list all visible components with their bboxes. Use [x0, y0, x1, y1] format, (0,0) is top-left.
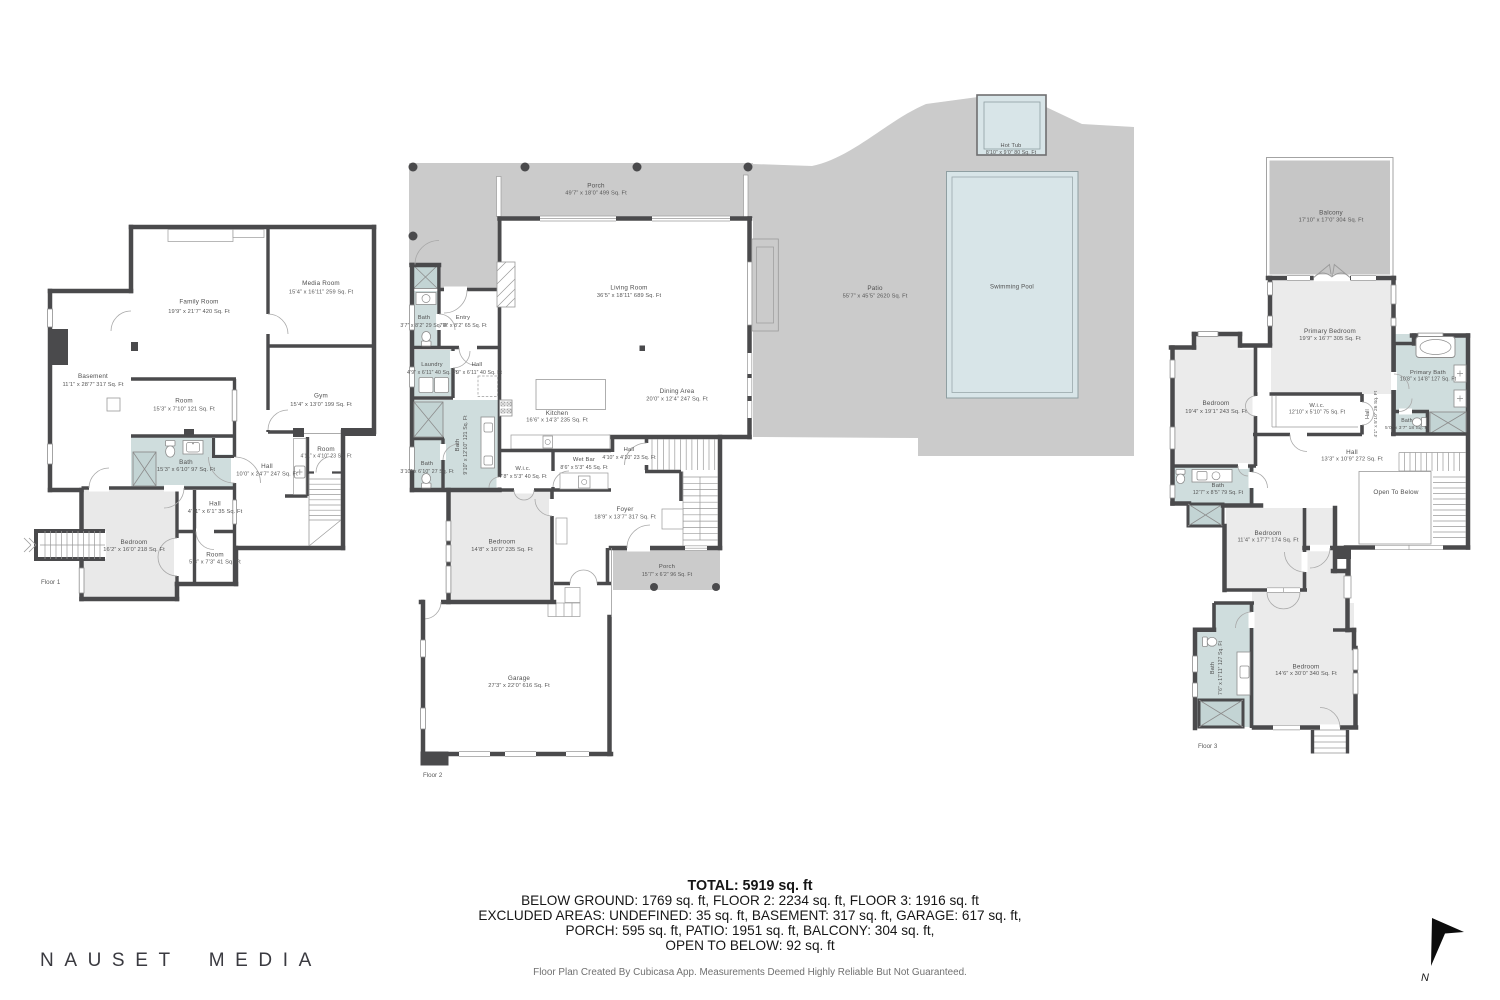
svg-text:Bedroom: Bedroom [121, 539, 148, 546]
svg-text:8’6” x 5’3” 45 Sq. Ft: 8’6” x 5’3” 45 Sq. Ft [560, 465, 608, 471]
svg-text:8’10” x 9’0” 80 Sq. Ft: 8’10” x 9’0” 80 Sq. Ft [986, 150, 1037, 156]
svg-text:15’3” x 7’10” 121 Sq. Ft: 15’3” x 7’10” 121 Sq. Ft [153, 407, 215, 413]
svg-text:Floor 1: Floor 1 [41, 579, 61, 586]
svg-text:Bedroom: Bedroom [1255, 530, 1282, 537]
svg-text:7’8” x 5’3” 40 Sq. Ft: 7’8” x 5’3” 40 Sq. Ft [499, 474, 547, 480]
svg-text:NAUSET MEDIA: NAUSET MEDIA [40, 950, 322, 971]
svg-text:20’0” x 12’4” 247 Sq. Ft: 20’0” x 12’4” 247 Sq. Ft [646, 397, 708, 403]
svg-text:4’10” x 4’10” 23 Sq. Ft: 4’10” x 4’10” 23 Sq. Ft [602, 455, 656, 461]
svg-text:Bedroom: Bedroom [489, 539, 516, 546]
svg-text:EXCLUDED AREAS: UNDEFINED: 35: EXCLUDED AREAS: UNDEFINED: 35 sq. ft, BA… [478, 908, 1021, 923]
svg-text:Family Room: Family Room [179, 299, 218, 306]
svg-text:Porch: Porch [659, 564, 675, 570]
svg-text:11’4” x 17’7” 174 Sq. Ft: 11’4” x 17’7” 174 Sq. Ft [1237, 538, 1298, 544]
svg-text:27’3” x 22’0” 616 Sq. Ft: 27’3” x 22’0” 616 Sq. Ft [488, 683, 550, 689]
svg-text:7’6” x 17’11” 127 Sq. Ft: 7’6” x 17’11” 127 Sq. Ft [1218, 640, 1224, 695]
svg-text:Media Room: Media Room [302, 280, 340, 287]
svg-text:14’6” x 30’0” 340 Sq. Ft: 14’6” x 30’0” 340 Sq. Ft [1275, 671, 1337, 677]
svg-text:N: N [1421, 972, 1429, 984]
svg-text:Open To Below: Open To Below [1373, 489, 1418, 496]
svg-text:4’9” x 6’11” 40 Sq. Ft: 4’9” x 6’11” 40 Sq. Ft [407, 370, 457, 376]
svg-text:Bath: Bath [455, 439, 461, 452]
svg-text:Hall: Hall [209, 501, 221, 508]
svg-text:Living Room: Living Room [610, 285, 647, 292]
svg-text:Hall: Hall [1346, 449, 1358, 456]
svg-text:Floor Plan Created By Cubicasa: Floor Plan Created By Cubicasa App. Meas… [533, 967, 967, 978]
svg-text:16’6” x 14’3” 235 Sq. Ft: 16’6” x 14’3” 235 Sq. Ft [526, 418, 588, 424]
svg-text:Foyer: Foyer [616, 506, 633, 513]
svg-text:19’9” x 21’7” 420 Sq. Ft: 19’9” x 21’7” 420 Sq. Ft [168, 309, 230, 315]
svg-text:Bedroom: Bedroom [1293, 664, 1320, 671]
svg-text:Bath: Bath [1212, 483, 1225, 489]
svg-text:Primary Bath: Primary Bath [1410, 370, 1446, 376]
svg-text:3’7” x 8’2” 29 Sq. Ft: 3’7” x 8’2” 29 Sq. Ft [400, 323, 448, 329]
svg-text:13’3” x 10’9” 272 Sq. Ft: 13’3” x 10’9” 272 Sq. Ft [1321, 457, 1383, 463]
svg-text:12’7” x 8’5” 79 Sq. Ft: 12’7” x 8’5” 79 Sq. Ft [1193, 490, 1244, 496]
svg-text:16’2” x 16’0” 218 Sq. Ft: 16’2” x 16’0” 218 Sq. Ft [103, 547, 165, 553]
svg-text:Floor 2: Floor 2 [423, 772, 443, 779]
svg-text:Gym: Gym [314, 393, 328, 400]
svg-text:Kitchen: Kitchen [546, 410, 569, 417]
svg-text:Porch: Porch [587, 183, 605, 190]
svg-text:PORCH: 595 sq. ft, PATIO: 1951: PORCH: 595 sq. ft, PATIO: 1951 sq. ft, B… [566, 923, 935, 938]
svg-text:Bath: Bath [179, 459, 193, 466]
svg-text:19’4” x 19’1” 243 Sq. Ft: 19’4” x 19’1” 243 Sq. Ft [1185, 409, 1247, 415]
svg-text:4’11” x 6’1” 35 Sq. Ft: 4’11” x 6’1” 35 Sq. Ft [188, 509, 243, 515]
svg-text:15’4” x 13’0” 199 Sq. Ft: 15’4” x 13’0” 199 Sq. Ft [290, 402, 352, 408]
svg-text:Dining Area: Dining Area [660, 388, 695, 395]
svg-text:49’7” x 18’0” 499 Sq. Ft: 49’7” x 18’0” 499 Sq. Ft [565, 191, 627, 197]
svg-text:Hall: Hall [261, 463, 273, 470]
svg-text:19’9” x 16’7” 305 Sq. Ft: 19’9” x 16’7” 305 Sq. Ft [1299, 336, 1361, 342]
svg-text:Room: Room [206, 552, 224, 559]
svg-text:Balcony: Balcony [1319, 210, 1343, 217]
svg-text:17’10” x 17’0” 304 Sq. Ft: 17’10” x 17’0” 304 Sq. Ft [1299, 218, 1364, 224]
svg-text:Hall: Hall [472, 362, 483, 368]
svg-text:15’7” x 6’2” 96 Sq. Ft: 15’7” x 6’2” 96 Sq. Ft [642, 572, 693, 578]
svg-text:55’7” x 45’5” 2620 Sq. Ft: 55’7” x 45’5” 2620 Sq. Ft [843, 294, 908, 300]
svg-text:Basement: Basement [78, 373, 108, 380]
svg-text:18’9” x 13’7” 317 Sq. Ft: 18’9” x 13’7” 317 Sq. Ft [594, 515, 656, 521]
svg-text:Bath: Bath [418, 315, 430, 321]
svg-text:W.i.c.: W.i.c. [1309, 403, 1325, 409]
svg-text:Primary Bedroom: Primary Bedroom [1304, 328, 1356, 335]
svg-text:Wet Bar: Wet Bar [573, 457, 595, 463]
svg-text:Floor 3: Floor 3 [1198, 743, 1218, 750]
svg-text:Room: Room [317, 446, 335, 453]
svg-text:3’10” x 6’10” 27 Sq. Ft: 3’10” x 6’10” 27 Sq. Ft [400, 469, 454, 475]
svg-text:4’11” x 4’10” 23 Sq. Ft: 4’11” x 4’10” 23 Sq. Ft [300, 454, 352, 460]
svg-text:Laundry: Laundry [421, 362, 443, 368]
svg-text:Garage: Garage [508, 675, 531, 682]
svg-text:Bath: Bath [421, 461, 433, 467]
svg-text:15’3” x 6’10” 97 Sq. Ft: 15’3” x 6’10” 97 Sq. Ft [157, 467, 216, 473]
svg-text:Bath: Bath [1401, 418, 1412, 424]
svg-text:10’8” x 14’8” 127 Sq. Ft: 10’8” x 14’8” 127 Sq. Ft [1400, 377, 1457, 383]
svg-text:11’1” x 28’7” 317 Sq. Ft: 11’1” x 28’7” 317 Sq. Ft [62, 382, 123, 388]
svg-text:5’0” x 3’7” 18 Sq. Ft: 5’0” x 3’7” 18 Sq. Ft [1385, 425, 1430, 431]
svg-text:10’0” x 24’7” 247 Sq. Ft: 10’0” x 24’7” 247 Sq. Ft [236, 472, 298, 478]
svg-text:Bedroom: Bedroom [1203, 400, 1230, 407]
svg-text:9’9” x 6’11” 40 Sq. Ft: 9’9” x 6’11” 40 Sq. Ft [452, 370, 502, 376]
svg-text:4’1” x 5’10” 26 Sq. Ft: 4’1” x 5’10” 26 Sq. Ft [1373, 390, 1379, 437]
svg-text:15’4” x 16’11” 259 Sq. Ft: 15’4” x 16’11” 259 Sq. Ft [289, 290, 354, 296]
svg-text:Hall: Hall [624, 447, 635, 453]
svg-text:14’8” x 16’0” 235 Sq. Ft: 14’8” x 16’0” 235 Sq. Ft [471, 547, 533, 553]
svg-text:W.i.c.: W.i.c. [515, 466, 531, 472]
svg-text:Bath: Bath [1210, 662, 1216, 674]
svg-text:TOTAL: 5919 sq. ft: TOTAL: 5919 sq. ft [688, 878, 813, 894]
svg-text:12’10” x 5’10” 75 Sq. Ft: 12’10” x 5’10” 75 Sq. Ft [1289, 410, 1346, 416]
svg-text:Hot Tub: Hot Tub [1001, 143, 1022, 149]
svg-text:5’8” x 7’3” 41 Sq. Ft: 5’8” x 7’3” 41 Sq. Ft [189, 560, 241, 566]
svg-text:Swimming Pool: Swimming Pool [990, 285, 1034, 291]
svg-text:9’10” x 12’10” 121 Sq. Ft: 9’10” x 12’10” 121 Sq. Ft [463, 415, 469, 475]
svg-text:36’5” x 18’11” 689 Sq. Ft: 36’5” x 18’11” 689 Sq. Ft [597, 293, 662, 299]
svg-text:Hall: Hall [1365, 409, 1371, 419]
svg-text:Room: Room [175, 398, 193, 405]
svg-text:Patio: Patio [867, 285, 883, 292]
svg-text:OPEN TO BELOW: 92 sq. ft: OPEN TO BELOW: 92 sq. ft [665, 938, 834, 953]
svg-text:Entry: Entry [456, 315, 471, 321]
svg-text:BELOW GROUND: 1769 sq. ft, FLO: BELOW GROUND: 1769 sq. ft, FLOOR 2: 2234… [521, 893, 979, 908]
